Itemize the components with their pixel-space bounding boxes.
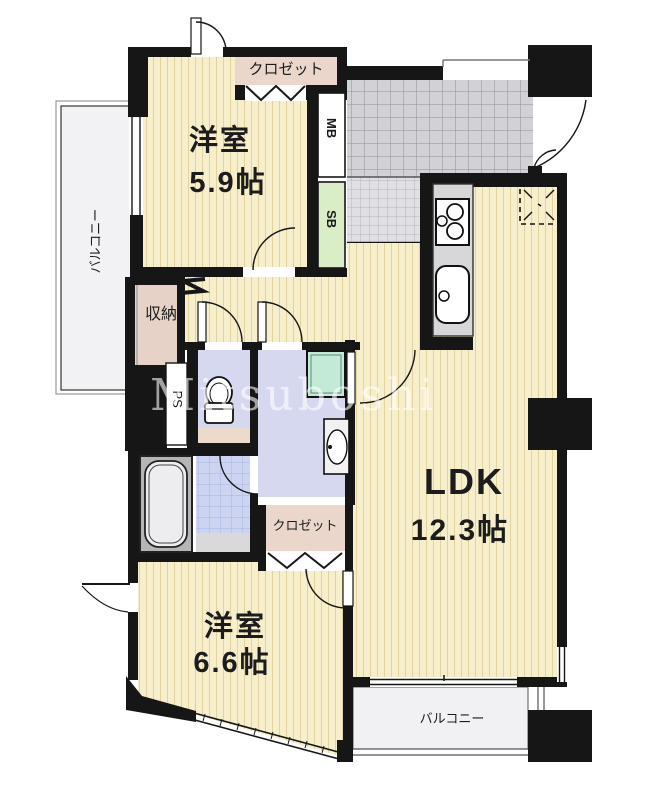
kitchen-sink-icon — [436, 266, 469, 323]
entrance-tile — [347, 80, 533, 177]
balcony-bottom-floor — [353, 687, 528, 749]
balcony-left — [56, 101, 137, 394]
entrance-door-leaf — [534, 150, 556, 168]
entrance-door-arc — [534, 100, 586, 168]
washroom-door-leaf — [258, 302, 266, 342]
bedroom2-door-leaf — [343, 571, 353, 606]
hallway-floor-2 — [347, 243, 420, 350]
bedroom2-floor — [138, 562, 343, 757]
watermark: Mitsuboshi — [150, 370, 470, 421]
meter-box — [318, 93, 345, 177]
floor-plan: 洋室 5.9帖 クロゼット MB SB バルコニー 収納 PS クロゼット LD… — [0, 0, 659, 800]
vanity-sink-icon — [324, 419, 349, 474]
shoe-box — [318, 182, 345, 268]
top-door-leaf — [191, 18, 201, 54]
closet-top-floor — [235, 57, 337, 87]
toilet-door-leaf — [198, 302, 206, 342]
toilet-floor-lower — [198, 428, 252, 445]
closet-mid-floor — [258, 505, 345, 553]
entrance-step — [347, 177, 420, 243]
bathtub-icon — [140, 456, 192, 552]
bathroom-ledge — [196, 533, 250, 552]
kitchen-counter — [433, 184, 473, 336]
